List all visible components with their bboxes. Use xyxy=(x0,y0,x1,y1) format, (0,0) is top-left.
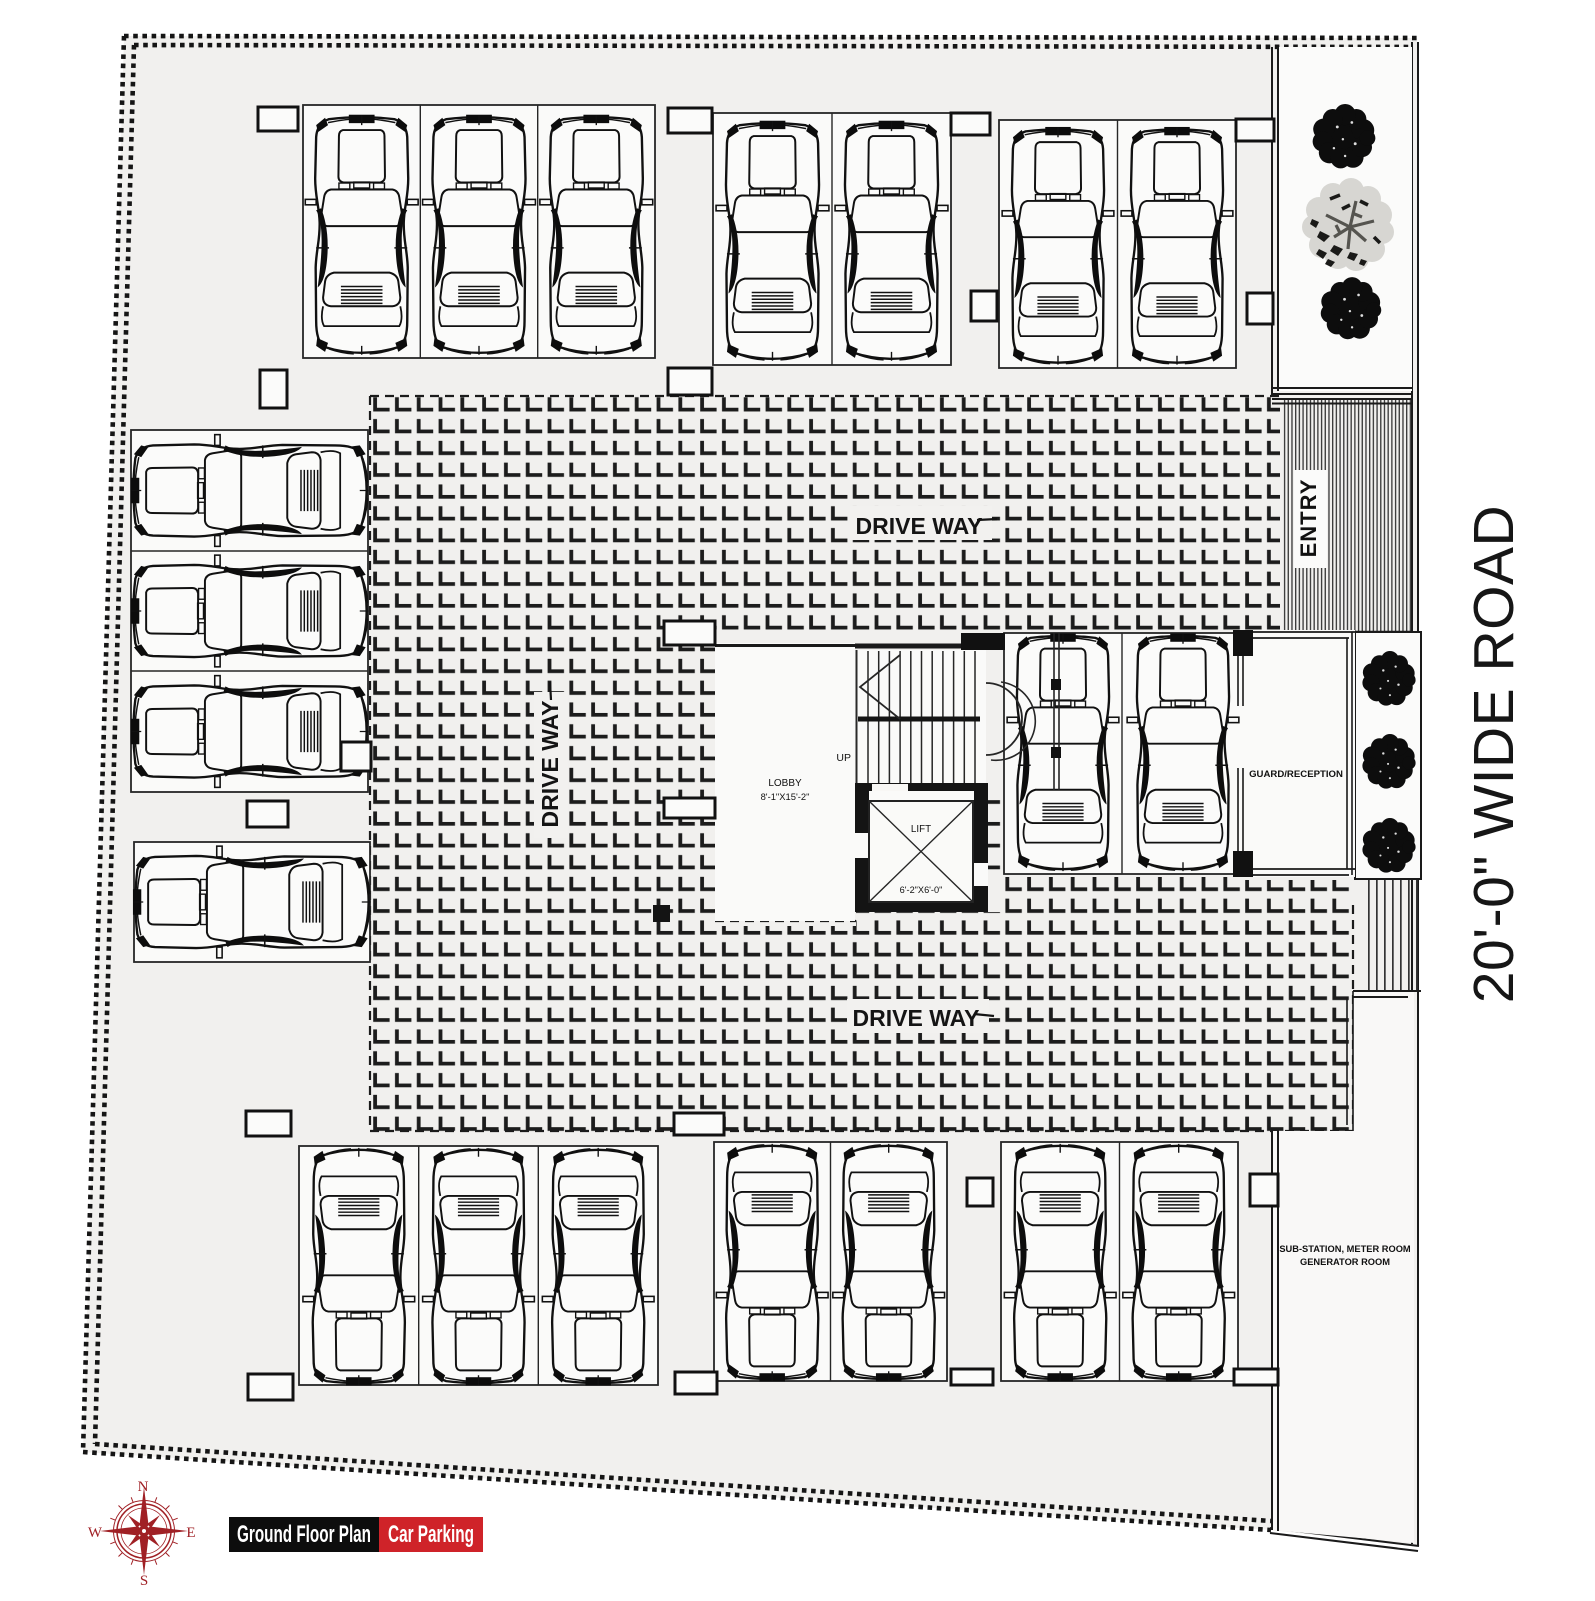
svg-text:DRIVE WAY: DRIVE WAY xyxy=(537,701,563,828)
svg-text:20'-0" WIDE ROAD: 20'-0" WIDE ROAD xyxy=(1462,505,1526,1003)
svg-text:DRIVE WAY: DRIVE WAY xyxy=(856,513,983,539)
svg-text:DRIVE WAY: DRIVE WAY xyxy=(853,1005,980,1031)
svg-text:GUARD/RECEPTION: GUARD/RECEPTION xyxy=(1249,769,1343,780)
svg-text:ENTRY: ENTRY xyxy=(1296,479,1321,558)
svg-text:SUB-STATION, METER ROOM: SUB-STATION, METER ROOM xyxy=(1279,1244,1411,1254)
svg-text:E: E xyxy=(186,1525,195,1541)
svg-text:UP: UP xyxy=(836,752,851,764)
svg-text:Ground Floor Plan: Ground Floor Plan xyxy=(237,1521,371,1548)
svg-text:W: W xyxy=(88,1525,103,1541)
svg-text:GENERATOR ROOM: GENERATOR ROOM xyxy=(1300,1257,1390,1267)
svg-text:S: S xyxy=(140,1573,148,1589)
svg-text:6'-2"X6'-0": 6'-2"X6'-0" xyxy=(900,885,943,895)
svg-text:N: N xyxy=(138,1479,149,1495)
svg-text:LOBBY: LOBBY xyxy=(768,778,802,789)
svg-text:8'-1"X15'-2": 8'-1"X15'-2" xyxy=(761,791,810,802)
svg-text:Car Parking: Car Parking xyxy=(388,1521,474,1548)
svg-text:LIFT: LIFT xyxy=(911,824,931,835)
